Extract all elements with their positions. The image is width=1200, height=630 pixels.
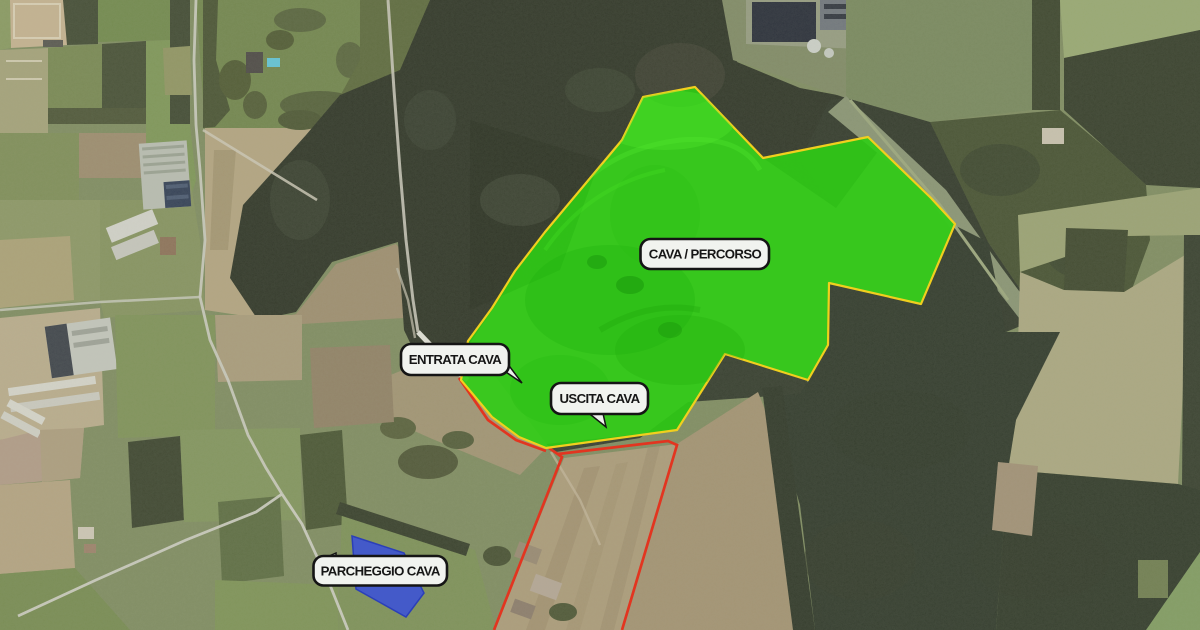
svg-text:PARCHEGGIO CAVA: PARCHEGGIO CAVA [321,564,441,579]
svg-text:ENTRATA CAVA: ENTRATA CAVA [409,352,502,367]
svg-text:CAVA / PERCORSO: CAVA / PERCORSO [649,247,762,262]
svg-text:USCITA CAVA: USCITA CAVA [559,391,640,406]
